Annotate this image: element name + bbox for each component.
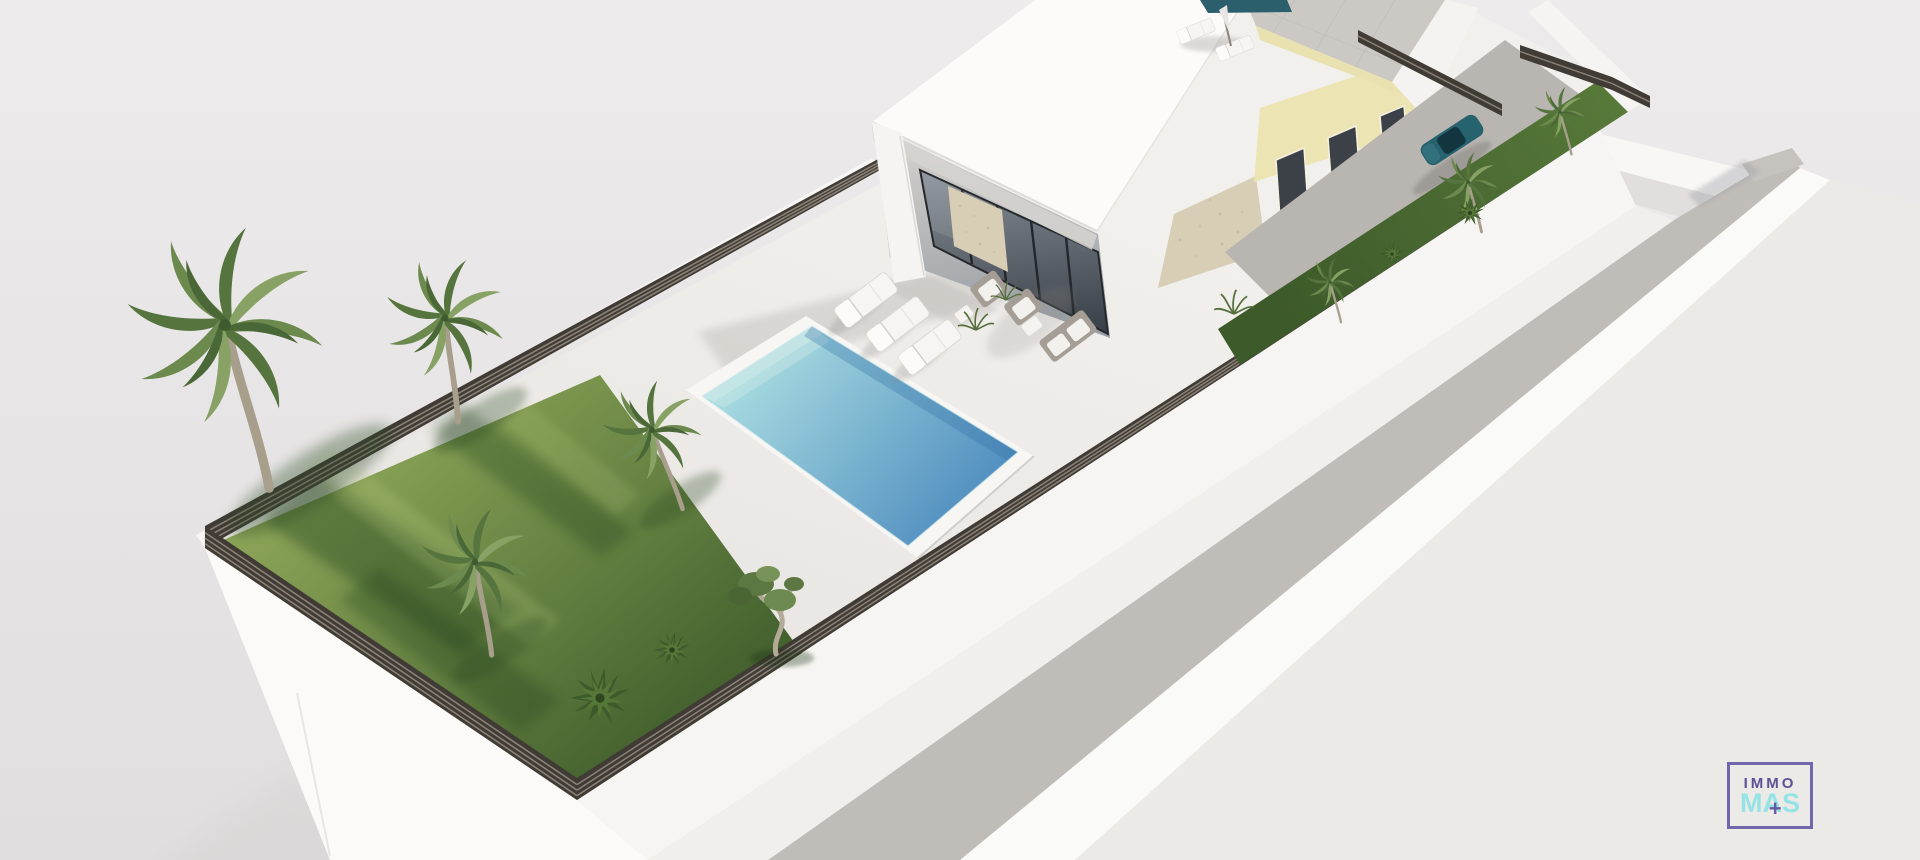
logo-text-mas: MAS+ <box>1740 791 1800 817</box>
logo-plus-sign: + <box>1769 798 1782 820</box>
scene-svg <box>0 0 1920 860</box>
glass-railing <box>1200 0 1292 13</box>
render-image: IMMO MAS+ <box>0 0 1920 860</box>
immo-mas-logo: IMMO MAS+ <box>1727 762 1813 829</box>
